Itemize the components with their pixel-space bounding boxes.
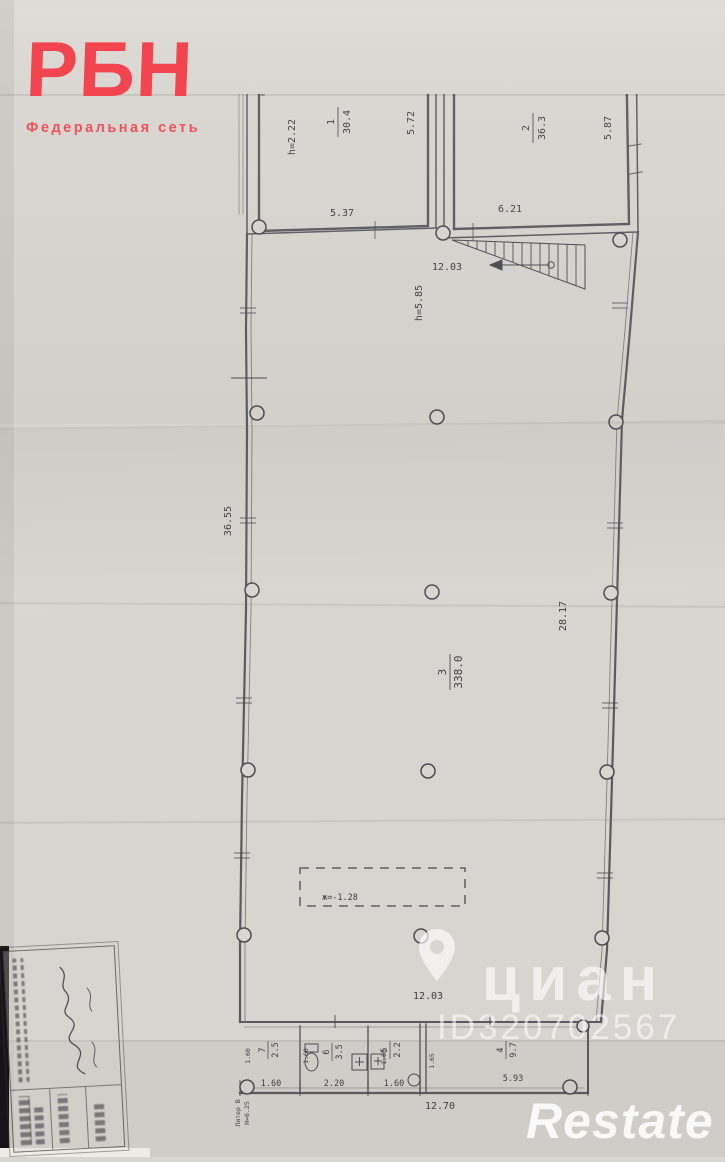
liter-height: Н=6.25: [243, 1101, 251, 1125]
room2-label: 2 36.3: [521, 113, 548, 143]
stamp-label-column: [11, 1084, 124, 1152]
dim-room1-right: 5.72: [406, 111, 417, 135]
dim-room5-depth: 1.60: [380, 1049, 388, 1065]
registration-stamp: [3, 945, 125, 1153]
dim-hall-width-bottom: 12.03: [413, 991, 443, 1002]
room-area: 3.5: [335, 1044, 345, 1059]
dim-wall-4-5: 1.65: [428, 1053, 436, 1069]
dim-room1-ceiling-height: h=2.22: [287, 119, 298, 155]
stamp-cell: [50, 1087, 89, 1150]
dim-room7-depth: 1.60: [244, 1048, 252, 1064]
room-number: 3: [436, 669, 449, 676]
dim-room2-bottom: 6.21: [498, 204, 522, 215]
dim-niche-1: 0.56: [257, 42, 265, 58]
dim-niche-3: 0.34: [272, 71, 280, 87]
dim-duct-diameter: d=30см: [449, 57, 459, 88]
room7-label: 7 2.5: [258, 1041, 281, 1059]
stamp-signature: [27, 951, 114, 1085]
room-area: 30.4: [342, 110, 353, 134]
dim-room6-width: 2.20: [324, 1079, 344, 1089]
dim-room4-width: 5.93: [503, 1074, 523, 1084]
drain-icon: [408, 1074, 420, 1086]
dim-room2-right: 5.87: [603, 116, 614, 140]
pit-elevation-label: ж=-1.28: [322, 893, 358, 903]
dim-room6-depth: 1.60: [302, 1048, 310, 1064]
stamp-cell: [11, 1089, 53, 1152]
stair-direction-arrow: [490, 260, 502, 270]
room1-label: 1 30.4: [326, 107, 353, 137]
agency-logo-text: РБН: [25, 30, 202, 108]
room3-label: 3 338.0: [436, 654, 465, 690]
walls: [235, 18, 642, 1093]
room-area: 2.2: [393, 1042, 403, 1057]
room-area: 2.5: [271, 1042, 281, 1057]
dim-hall-width-top: 12.03: [432, 262, 462, 273]
agency-logo-tagline: Федеральная сеть: [26, 120, 200, 136]
room-number: 6: [322, 1049, 332, 1054]
liter-text: Литер В: [234, 1099, 242, 1126]
room-area: 9.7: [509, 1042, 519, 1057]
dim-room5-width: 1.60: [384, 1079, 404, 1089]
stamp-cell: [86, 1085, 124, 1148]
room-area: 36.3: [537, 116, 548, 140]
stamp-content-column: [4, 946, 121, 1090]
wall-joints-and-ticks: [231, 221, 628, 1096]
room6-label: 6 3.5: [322, 1043, 345, 1061]
room-number: 7: [258, 1047, 268, 1052]
dim-room7-width: 1.60: [261, 1079, 281, 1089]
dim-niche-2: 0.28: [265, 42, 273, 58]
dim-bottom-overall: 12.70: [425, 1101, 455, 1112]
agency-logo: РБН Федеральная сеть: [26, 30, 200, 136]
room4-label: 4 9.7: [496, 1041, 519, 1059]
room-number: 4: [496, 1047, 506, 1052]
dim-room1-bottom: 5.37: [330, 208, 354, 219]
room-number: 1: [326, 119, 337, 125]
staircase: [452, 240, 585, 289]
dim-left-wall: 36.55: [223, 506, 234, 536]
dim-hall-ceiling-height: h=5.85: [414, 285, 425, 321]
columns: [237, 28, 637, 1094]
liter-label: Литер В Н=6.25: [234, 1099, 251, 1126]
room-area: 338.0: [452, 655, 465, 688]
room-number: 2: [521, 125, 532, 131]
